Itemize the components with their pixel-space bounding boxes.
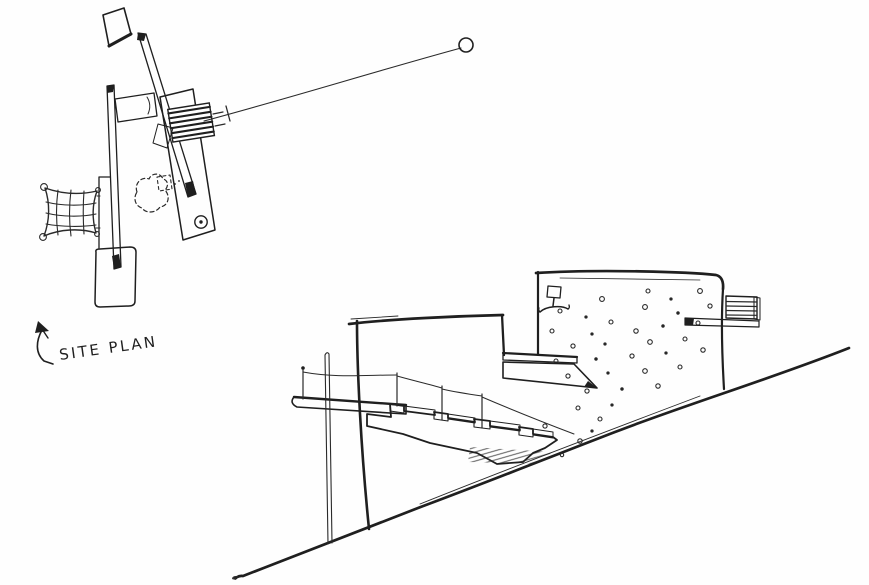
plan-lower-pad [95, 177, 136, 307]
site-plan-label: SITE PLAN [58, 332, 159, 364]
plan-canopy-net [40, 184, 101, 241]
balcony-louver-box [726, 296, 760, 320]
stair-nub [519, 427, 533, 437]
leader-line [204, 48, 461, 121]
site-plan-drawing: SITE PLAN [35, 8, 473, 364]
roof-lamp-icon [539, 286, 570, 312]
stair-nub [434, 412, 448, 421]
landing-slab [292, 397, 406, 414]
sketch-svg: SITE PLAN [0, 0, 869, 585]
plan-stair-block [168, 103, 215, 142]
section-drawing [233, 271, 849, 579]
left-building-outline [349, 315, 504, 355]
pin-marker-icon [459, 38, 473, 52]
mid-terrace-slab [503, 353, 597, 388]
north-arrow-icon [35, 321, 53, 364]
plan-room-outline [115, 93, 157, 122]
plan-block-ticks [213, 112, 225, 126]
sketch-canvas: SITE PLAN [0, 0, 869, 585]
plan-roof-block [103, 8, 131, 46]
guard-pole [325, 353, 332, 544]
